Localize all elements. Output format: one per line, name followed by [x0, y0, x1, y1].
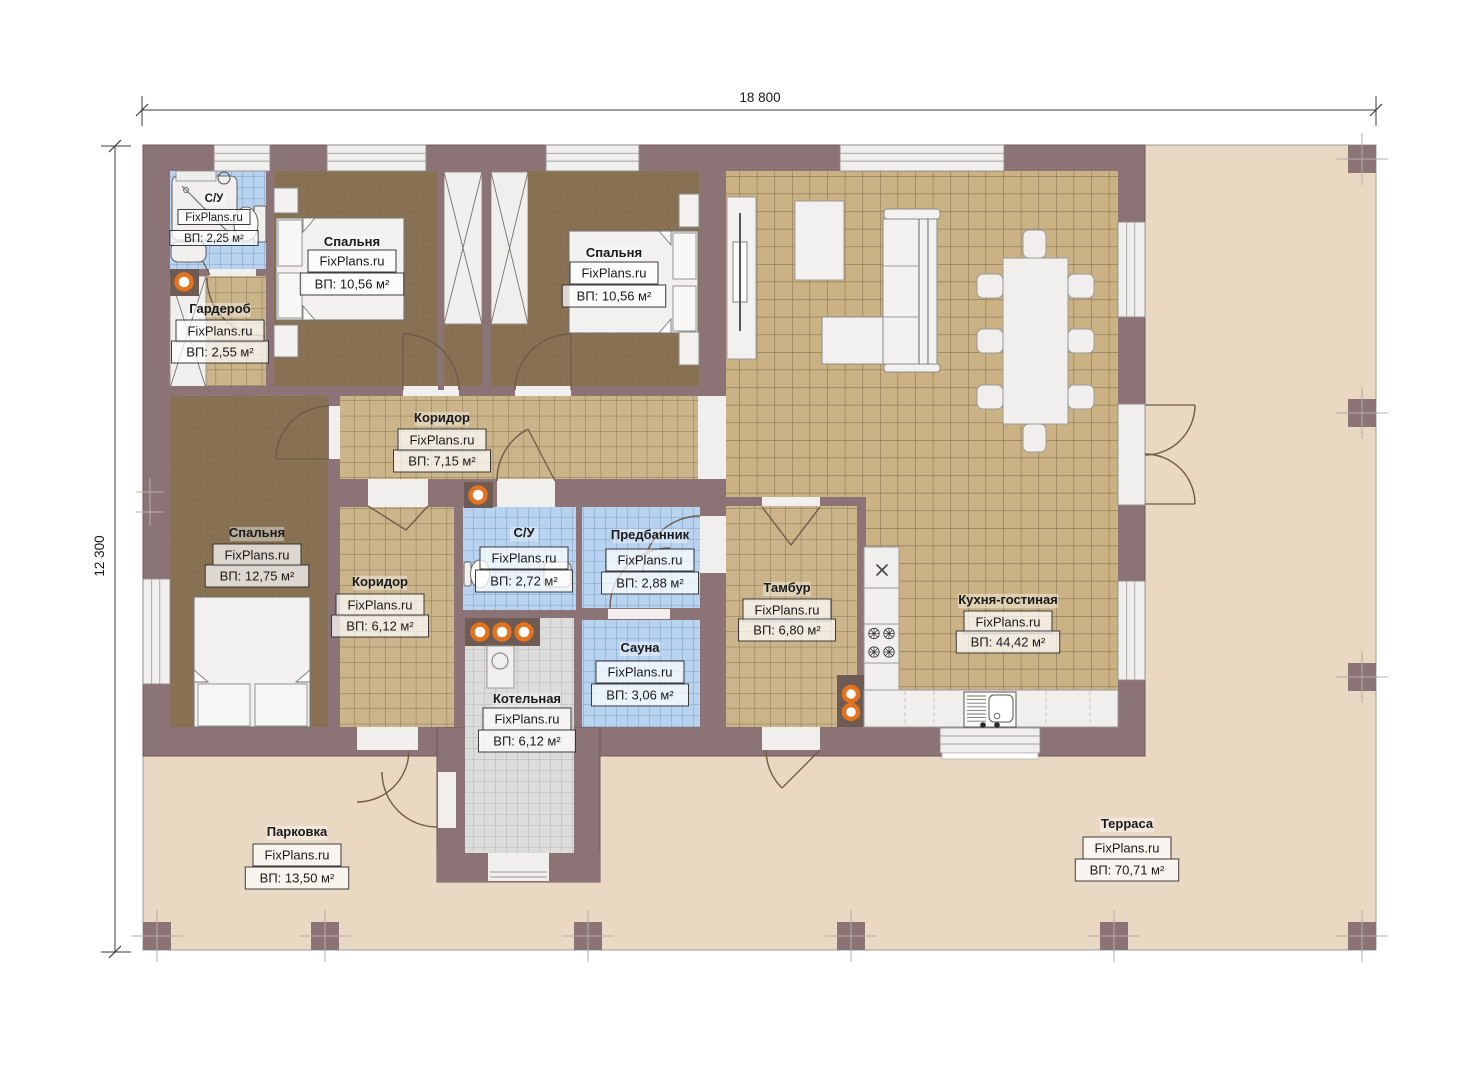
- svg-text:FixPlans.ru: FixPlans.ru: [347, 598, 412, 613]
- svg-text:Предбанник: Предбанник: [611, 527, 690, 542]
- svg-text:ВП: 2,72 м²: ВП: 2,72 м²: [490, 574, 558, 589]
- svg-text:ВП: 6,12 м²: ВП: 6,12 м²: [493, 734, 561, 749]
- svg-text:Спальня: Спальня: [229, 525, 285, 540]
- svg-text:ВП: 6,80 м²: ВП: 6,80 м²: [753, 623, 821, 638]
- svg-text:Тамбур: Тамбур: [763, 580, 810, 595]
- svg-text:FixPlans.ru: FixPlans.ru: [617, 553, 682, 568]
- svg-text:Котельная: Котельная: [493, 691, 561, 706]
- svg-text:Парковка: Парковка: [267, 824, 328, 839]
- svg-text:FixPlans.ru: FixPlans.ru: [1094, 841, 1159, 856]
- svg-text:ВП: 10,56 м²: ВП: 10,56 м²: [577, 289, 652, 304]
- svg-text:ВП: 2,88 м²: ВП: 2,88 м²: [616, 576, 684, 591]
- svg-text:ВП: 2,25 м²: ВП: 2,25 м²: [184, 233, 244, 245]
- svg-text:ВП: 70,71 м²: ВП: 70,71 м²: [1090, 863, 1165, 878]
- svg-text:Гардероб: Гардероб: [189, 301, 250, 316]
- svg-text:ВП: 13,50 м²: ВП: 13,50 м²: [260, 871, 335, 886]
- svg-text:ВП: 2,55 м²: ВП: 2,55 м²: [186, 345, 254, 360]
- svg-text:FixPlans.ru: FixPlans.ru: [409, 433, 474, 448]
- svg-text:ВП: 44,42 м²: ВП: 44,42 м²: [971, 635, 1046, 650]
- svg-text:Спальня: Спальня: [586, 245, 642, 260]
- svg-text:Спальня: Спальня: [324, 234, 380, 249]
- svg-text:FixPlans.ru: FixPlans.ru: [319, 254, 384, 269]
- svg-text:С/У: С/У: [205, 193, 225, 205]
- svg-text:Коридор: Коридор: [352, 574, 408, 589]
- svg-text:FixPlans.ru: FixPlans.ru: [607, 665, 672, 680]
- svg-text:ВП: 10,56 м²: ВП: 10,56 м²: [315, 277, 390, 292]
- svg-text:Коридор: Коридор: [414, 410, 470, 425]
- svg-text:ВП: 7,15 м²: ВП: 7,15 м²: [408, 454, 476, 469]
- svg-text:FixPlans.ru: FixPlans.ru: [185, 212, 243, 224]
- svg-text:FixPlans.ru: FixPlans.ru: [975, 615, 1040, 630]
- svg-text:ВП: 12,75 м²: ВП: 12,75 м²: [220, 569, 295, 584]
- svg-text:FixPlans.ru: FixPlans.ru: [581, 266, 646, 281]
- svg-text:12 300: 12 300: [92, 535, 107, 576]
- svg-text:Сауна: Сауна: [620, 640, 660, 655]
- svg-text:Терраса: Терраса: [1101, 816, 1154, 831]
- svg-text:18 800: 18 800: [739, 90, 780, 105]
- svg-text:FixPlans.ru: FixPlans.ru: [224, 548, 289, 563]
- svg-text:С/У: С/У: [513, 525, 535, 540]
- svg-text:FixPlans.ru: FixPlans.ru: [491, 551, 556, 566]
- svg-text:ВП: 6,12 м²: ВП: 6,12 м²: [346, 619, 414, 634]
- svg-text:FixPlans.ru: FixPlans.ru: [494, 712, 559, 727]
- svg-text:ВП: 3,06 м²: ВП: 3,06 м²: [606, 688, 674, 703]
- svg-text:FixPlans.ru: FixPlans.ru: [264, 848, 329, 863]
- svg-text:FixPlans.ru: FixPlans.ru: [187, 324, 252, 339]
- svg-text:FixPlans.ru: FixPlans.ru: [754, 603, 819, 618]
- svg-text:Кухня-гостиная: Кухня-гостиная: [958, 592, 1058, 607]
